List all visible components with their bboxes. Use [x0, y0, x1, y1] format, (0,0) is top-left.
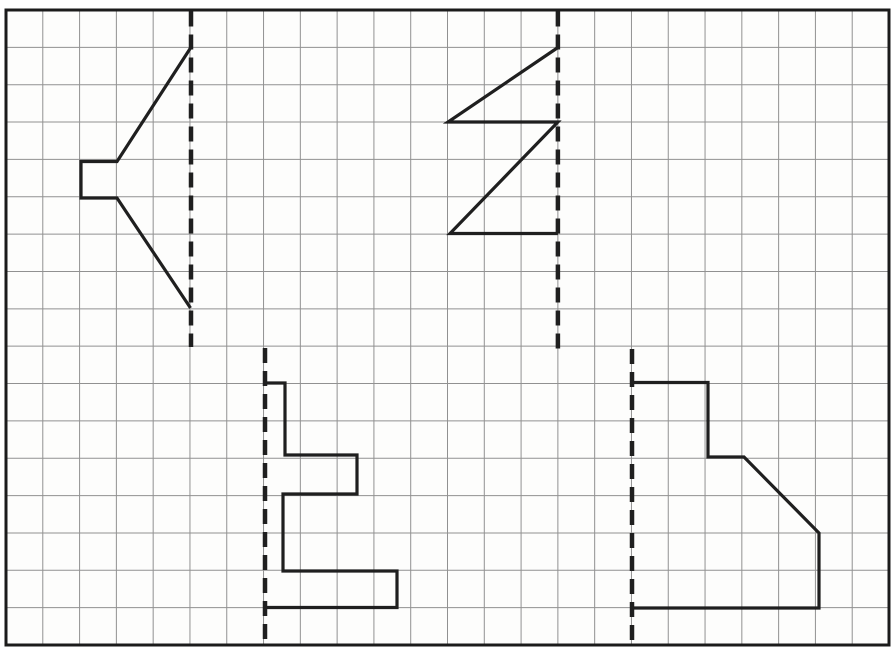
grid-paper	[0, 0, 895, 656]
worksheet-page	[0, 0, 895, 656]
